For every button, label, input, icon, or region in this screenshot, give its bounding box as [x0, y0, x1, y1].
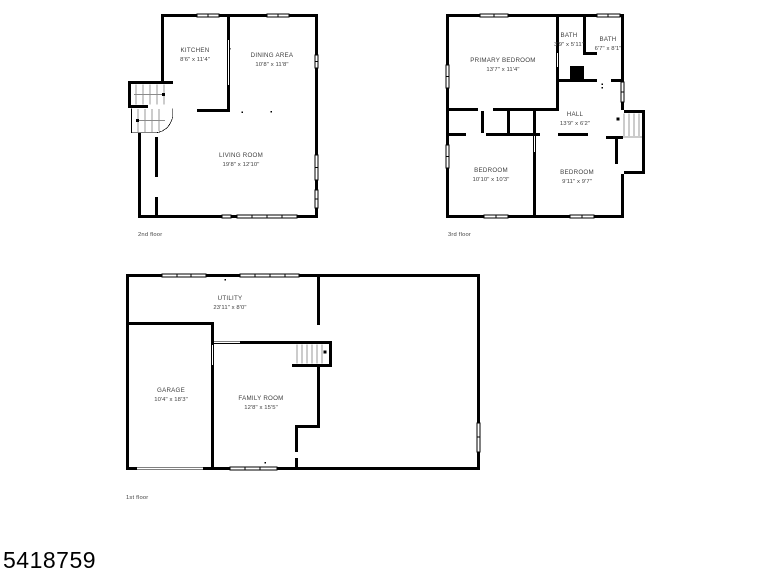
room-name: LIVING ROOM: [219, 151, 263, 161]
cased-openings-1st-floor: [212, 342, 241, 365]
photo-id: 5418759: [3, 548, 96, 572]
room-name: BEDROOM: [560, 168, 594, 178]
room-label-bedroom-left: BEDROOM 10'10" x 10'3": [473, 166, 510, 185]
room-label-dining-area: DINING AREA 10'8" x 11'8": [251, 51, 294, 70]
floorplan-sheet: KITCHEN 8'6" x 11'4" DINING AREA 10'8" x…: [0, 0, 768, 576]
room-dims: 12'8" x 15'5": [238, 404, 283, 414]
room-dims: 8'6" x 11'4": [180, 56, 210, 66]
room-label-bath-small: BATH 3'9" x 5'11": [554, 31, 584, 50]
room-dims: 6'7" x 8'1": [595, 45, 622, 55]
room-name: KITCHEN: [180, 46, 210, 56]
floorplan-2nd-floor: [128, 14, 318, 218]
floorplan-drawing: [0, 0, 768, 576]
room-name: FAMILY ROOM: [238, 394, 283, 404]
floorplan-1st-floor: [126, 274, 480, 470]
room-label-family-room: FAMILY ROOM 12'8" x 15'5": [238, 394, 283, 413]
room-label-primary-bedroom: PRIMARY BEDROOM 13'7" x 11'4": [470, 56, 535, 75]
caption-3rd-floor: 3rd floor: [448, 231, 471, 239]
room-label-bedroom-right: BEDROOM 9'11" x 9'7": [560, 168, 594, 187]
room-name: BATH: [554, 31, 584, 41]
room-name: PRIMARY BEDROOM: [470, 56, 535, 66]
walls-1st-floor: [126, 274, 480, 470]
room-dims: 23'11" x 8'0": [213, 304, 246, 314]
room-label-garage: GARAGE 10'4" x 18'3": [154, 386, 188, 405]
room-label-hall: HALL 13'9" x 6'2": [560, 110, 590, 129]
room-name: GARAGE: [154, 386, 188, 396]
room-label-utility: UTILITY 23'11" x 8'0": [213, 294, 246, 313]
label-dots-3rd-floor: [602, 84, 604, 89]
room-dims: 19'8" x 12'10": [219, 161, 263, 171]
room-dims: 13'7" x 11'4": [470, 66, 535, 76]
room-label-kitchen: KITCHEN 8'6" x 11'4": [180, 46, 210, 65]
room-dims: 9'11" x 9'7": [560, 178, 594, 188]
stairs-3rd-floor-icon: [617, 114, 643, 138]
walls-2nd-floor: [128, 14, 318, 218]
stairs-2nd-floor-icon: [131, 85, 172, 133]
room-dims: 10'10" x 10'3": [473, 176, 510, 186]
room-dims: 3'9" x 5'11": [554, 41, 584, 51]
caption-2nd-floor: 2nd floor: [138, 231, 162, 239]
room-name: BEDROOM: [473, 166, 510, 176]
room-dims: 10'8" x 11'8": [251, 61, 294, 71]
cased-opening-kitchen: [228, 40, 230, 85]
room-name: UTILITY: [213, 294, 246, 304]
room-dims: 13'9" x 6'2": [560, 120, 590, 130]
room-name: HALL: [560, 110, 590, 120]
room-name: DINING AREA: [251, 51, 294, 61]
garage-door-opening: [137, 468, 203, 470]
room-label-living-room: LIVING ROOM 19'8" x 12'10": [219, 151, 263, 170]
room-dims: 10'4" x 18'3": [154, 396, 188, 406]
cased-openings-3rd-floor: [534, 53, 559, 152]
room-name: BATH: [595, 35, 622, 45]
room-label-bath-large: BATH 6'7" x 8'1": [595, 35, 622, 54]
windows-2nd-floor: [197, 14, 318, 218]
caption-1st-floor: 1st floor: [126, 494, 148, 502]
stairs-1st-floor-icon: [297, 345, 326, 364]
windows-1st-floor: [162, 274, 480, 470]
